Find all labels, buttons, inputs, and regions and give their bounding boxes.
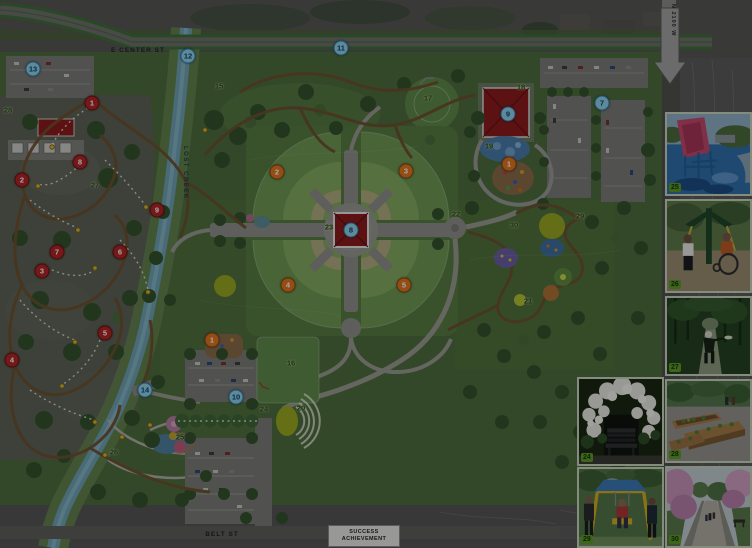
street-label-lost-creek: LOST CREEK (182, 146, 188, 200)
accessible-swing-photo: 29 (577, 467, 664, 548)
south-roundabout (341, 318, 361, 338)
disc-golf-photo: 27 (665, 296, 752, 376)
event-lawn (257, 337, 319, 403)
photo-badge: 30 (669, 535, 681, 544)
street-label-belt: BELT ST (205, 531, 239, 538)
success-achievement-sign: SUCCESS ACHIEVEMENT (328, 525, 400, 547)
sign-line1: SUCCESS (349, 529, 378, 536)
photo-badge: 26 (669, 280, 681, 289)
community-garden-photo: 28 (665, 379, 752, 463)
park-master-plan-screenshot: E CENTER ST LOST CREEK N 2100 W BELT ST … (0, 0, 752, 548)
photo-badge: 28 (669, 450, 681, 459)
sign-line2: ACHIEVEMENT (342, 536, 386, 543)
blossom-promenade-photo: 30 (665, 466, 752, 548)
street-label-e-center: E CENTER ST (111, 47, 165, 54)
outdoor-fitness-photo: 26 (665, 199, 752, 293)
splash-pad-photo: 25 (665, 112, 752, 196)
photo-badge: 25 (669, 183, 681, 192)
indoor-facility-building (478, 83, 534, 142)
photo-badge: 29 (581, 535, 593, 544)
arbor-bench-photo: 24 (577, 377, 664, 466)
photo-badge: 24 (581, 453, 593, 462)
amphitheater-lawn (276, 406, 298, 436)
photo-badge: 27 (669, 363, 681, 372)
street-label-n2100w: N 2100 W (670, 4, 676, 36)
